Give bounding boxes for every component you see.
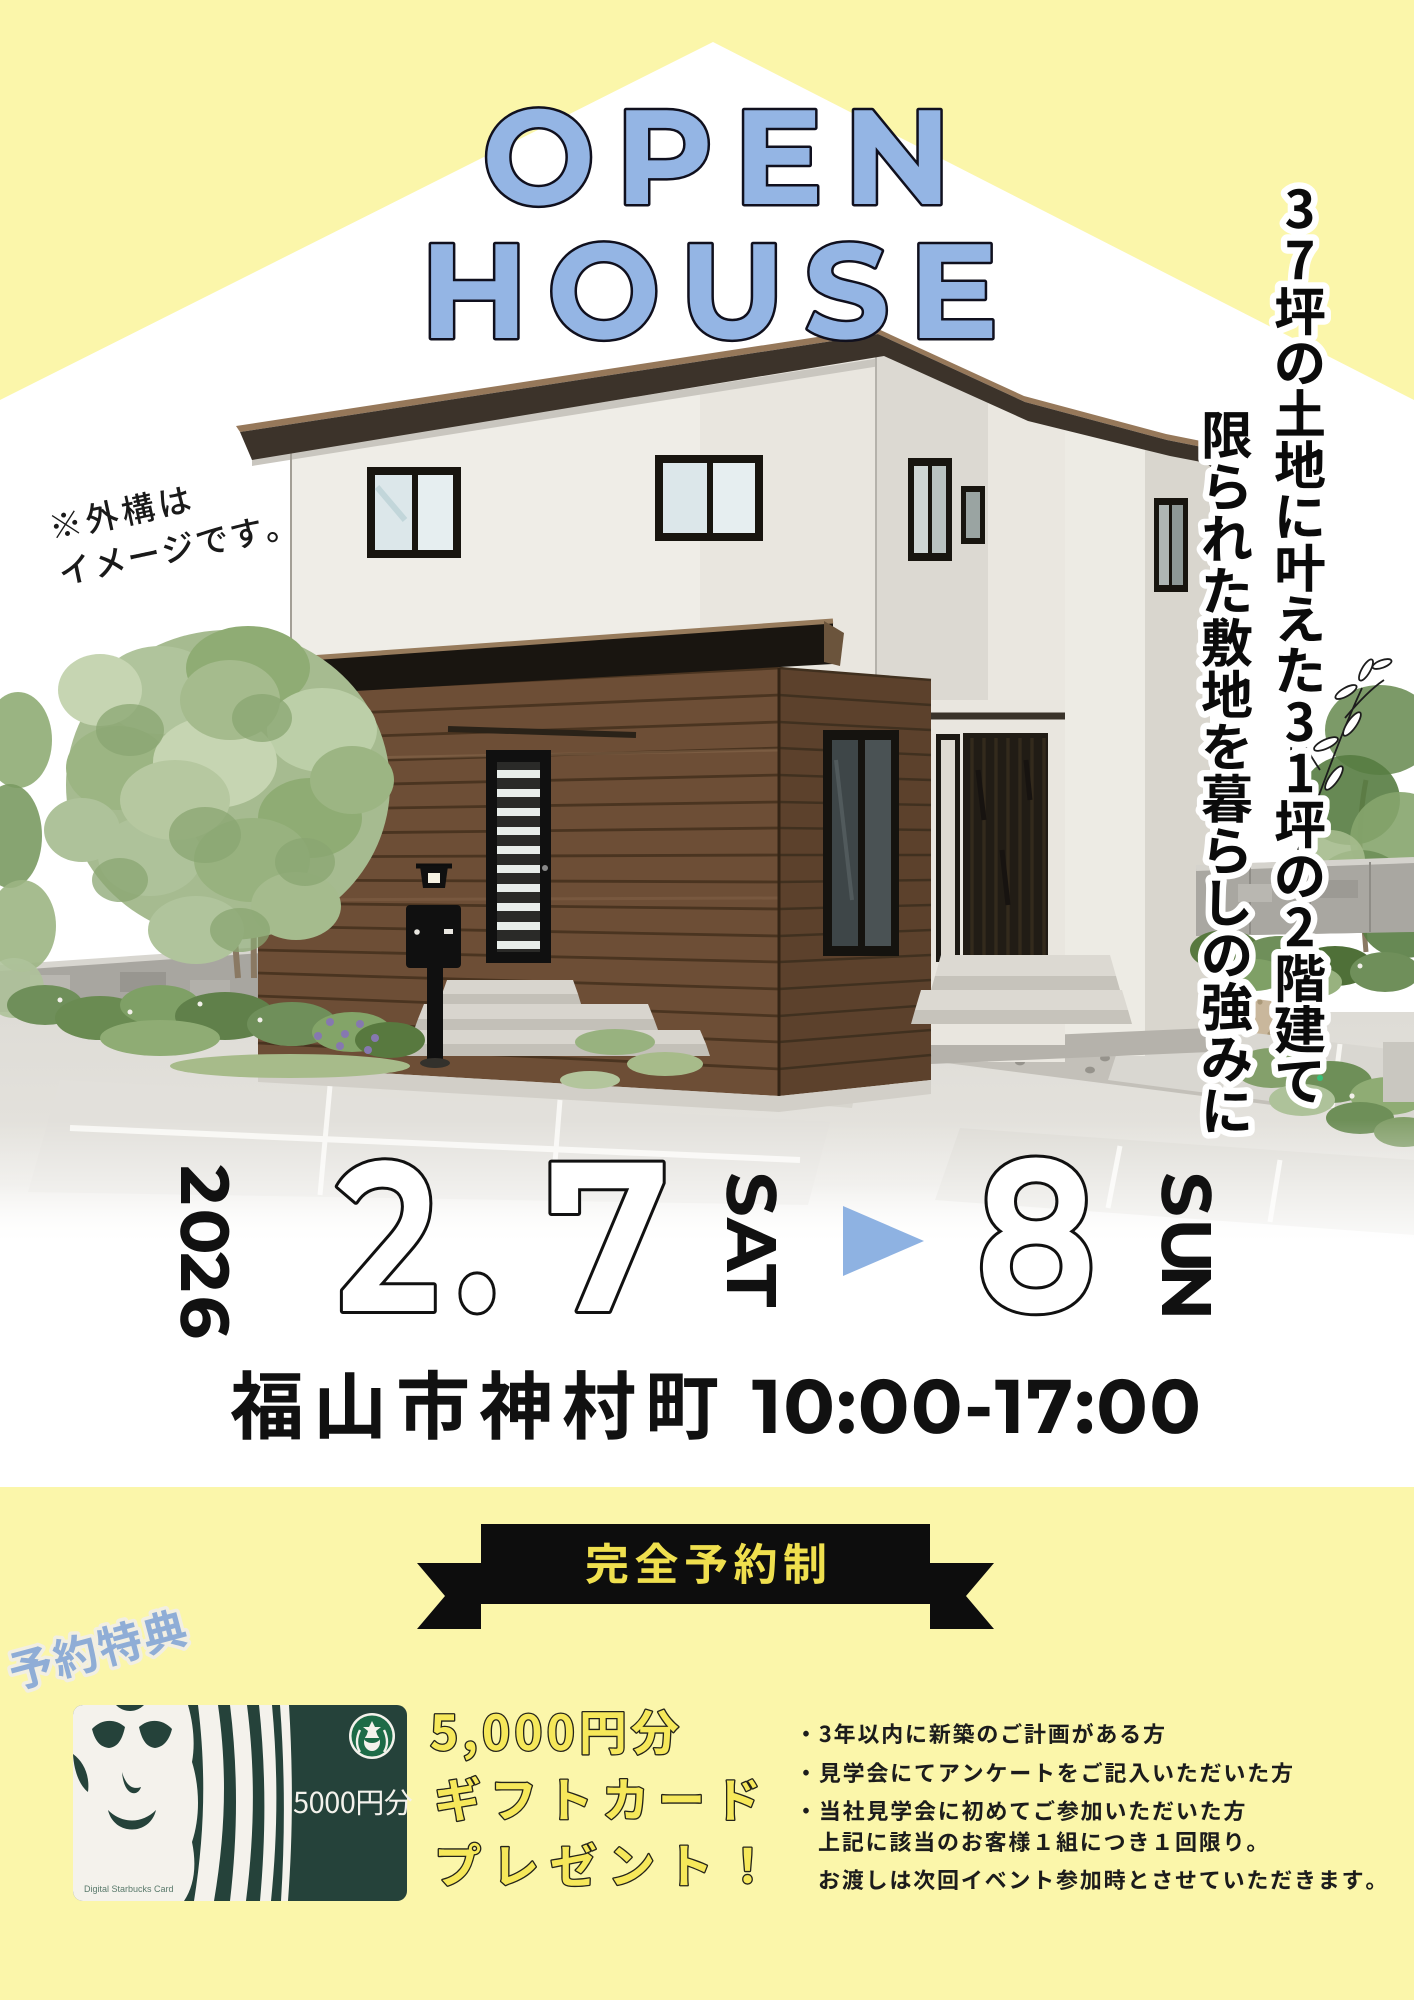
svg-text:Digital Starbucks Card: Digital Starbucks Card (84, 1884, 174, 1894)
